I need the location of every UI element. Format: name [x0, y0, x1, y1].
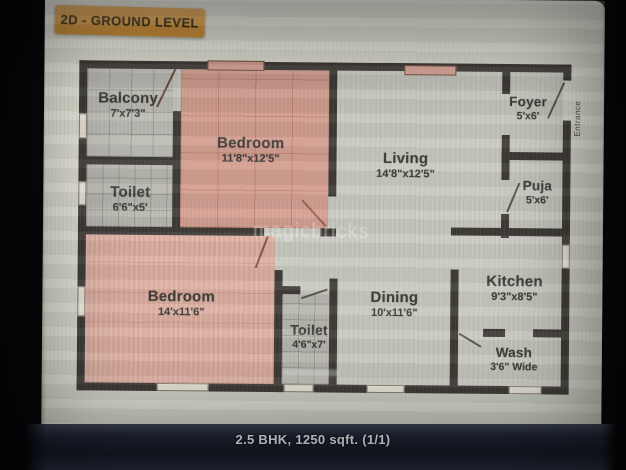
room-label-dining: Dining 10'x11'6"	[370, 289, 418, 319]
photo-frame: 2D - GROUND LEVEL	[0, 0, 626, 470]
room-label-bedroom2: Bedroom 14'x11'6"	[148, 288, 216, 319]
wall-segment	[533, 329, 567, 337]
wall-segment	[542, 386, 569, 394]
room-label-living: Living 14'8"x12'5"	[376, 150, 435, 181]
wall-segment	[320, 228, 336, 236]
window-marker	[207, 60, 264, 70]
wall-segment	[274, 286, 300, 294]
window-marker	[157, 383, 209, 391]
wall-segment	[79, 156, 181, 165]
wall-segment	[450, 270, 459, 394]
floor-plan: Balcony 7'x7'3" Bedroom 11'8"x12'5" Livi…	[77, 60, 572, 394]
entrance-label: Entrance	[573, 87, 582, 137]
window-marker	[404, 65, 456, 75]
caption-text: 2.5 BHK, 1250 sqft. (1/1)	[0, 432, 626, 447]
watermark-smudge	[283, 369, 339, 376]
level-banner: 2D - GROUND LEVEL	[54, 5, 205, 38]
room-label-foyer: Foyer 5'x6'	[509, 94, 547, 122]
window-marker	[78, 181, 86, 205]
room-label-balcony: Balcony 7'x7'3"	[98, 89, 158, 120]
room-label-kitchen: Kitchen 9'3"x8'5"	[486, 273, 543, 303]
wall-segment	[483, 329, 505, 337]
room-label-toilet2: Toilet 4'6"x7'	[290, 322, 328, 351]
wall-segment	[209, 383, 284, 392]
room-label-puja: Puja 5'x6'	[523, 178, 553, 206]
wall-segment	[502, 152, 569, 161]
room-label-wash: Wash 3'6" Wide	[490, 345, 537, 373]
window-marker	[284, 384, 314, 392]
wall-segment	[562, 121, 571, 245]
floorplan-sheet: 2D - GROUND LEVEL	[41, 0, 605, 437]
wall-segment	[314, 384, 367, 392]
window-marker	[562, 245, 570, 269]
wall-segment	[563, 65, 571, 81]
wall-segment	[77, 316, 86, 390]
wall-segment	[328, 62, 337, 196]
wall-segment	[79, 60, 87, 113]
caption-bar: 2.5 BHK, 1250 sqft. (1/1)	[0, 424, 626, 470]
wall-segment	[77, 205, 86, 286]
window-marker	[509, 386, 542, 394]
room-label-toilet1: Toilet 6'6"x5'	[110, 184, 150, 214]
window-marker	[77, 286, 85, 316]
wall-segment	[451, 228, 568, 237]
window-marker	[367, 385, 405, 393]
window-marker	[79, 113, 87, 138]
photo-dark-edge-left	[0, 0, 46, 470]
photo-dark-edge-right	[602, 0, 626, 470]
wall-segment	[77, 382, 157, 391]
room-label-bedroom1: Bedroom 11'8"x12'5"	[217, 135, 285, 166]
wall-segment	[502, 64, 510, 94]
wall-segment	[172, 111, 181, 235]
wall-segment	[78, 226, 264, 236]
